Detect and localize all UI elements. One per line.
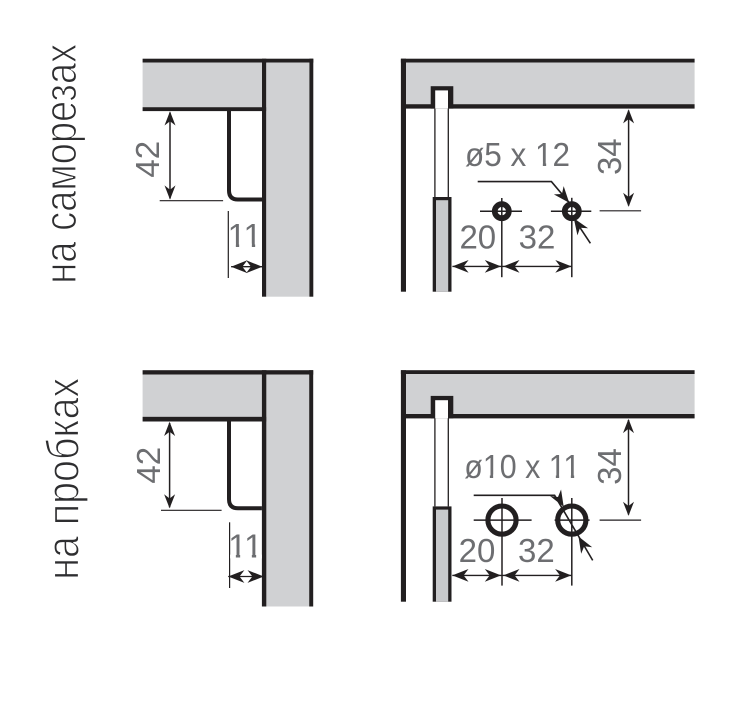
svg-text:32: 32 — [518, 532, 555, 569]
svg-text:34: 34 — [591, 138, 628, 175]
svg-text:20: 20 — [459, 532, 496, 569]
svg-text:на пробках: на пробках — [38, 378, 89, 580]
svg-text:20: 20 — [459, 218, 496, 255]
svg-text:11: 11 — [228, 528, 262, 565]
svg-text:42: 42 — [129, 141, 166, 178]
svg-text:42: 42 — [130, 447, 167, 484]
svg-text:32: 32 — [519, 218, 556, 255]
svg-text:11: 11 — [228, 217, 262, 254]
svg-text:на саморезах: на саморезах — [35, 44, 86, 284]
svg-text:ø5 x 12: ø5 x 12 — [465, 136, 570, 173]
svg-text:ø10 x 11: ø10 x 11 — [464, 448, 580, 485]
svg-text:34: 34 — [591, 448, 628, 485]
